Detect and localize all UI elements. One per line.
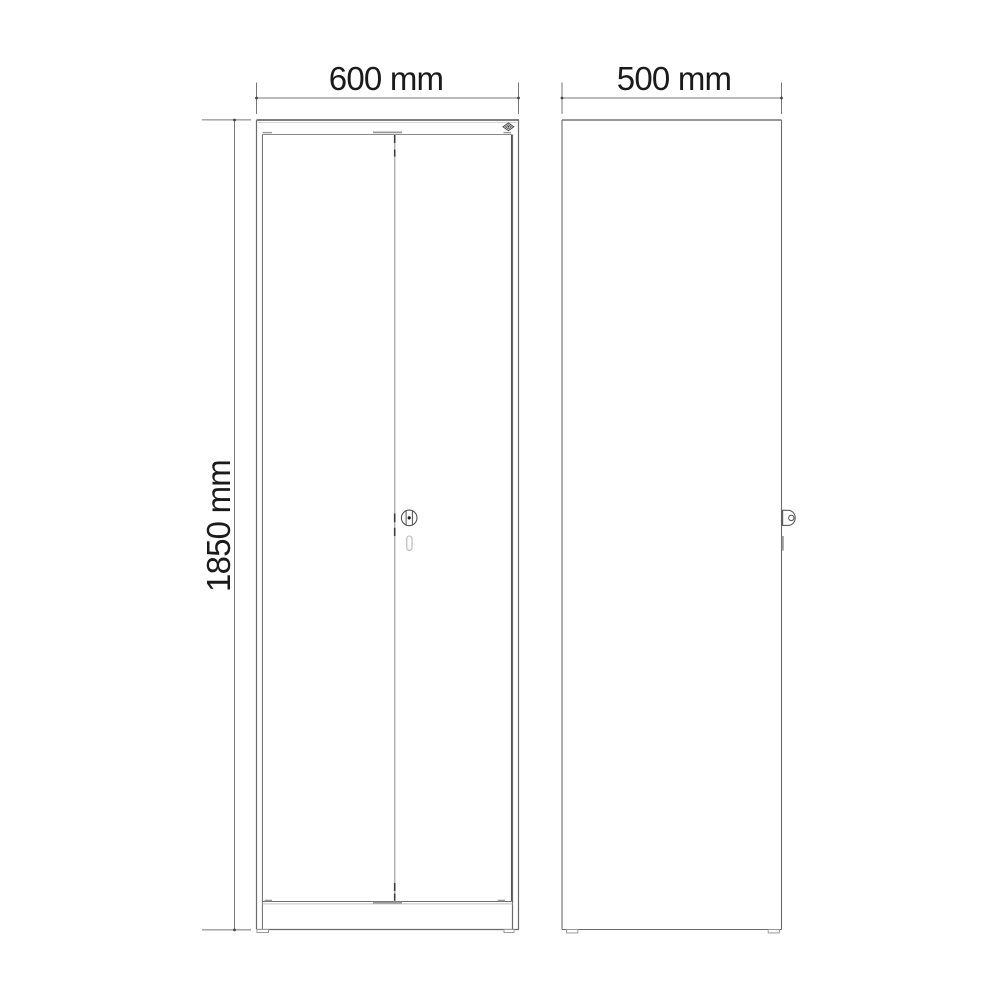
svg-text:600 mm: 600 mm xyxy=(329,60,443,97)
svg-text:500 mm: 500 mm xyxy=(617,60,731,97)
svg-text:1850 mm: 1850 mm xyxy=(200,460,237,592)
